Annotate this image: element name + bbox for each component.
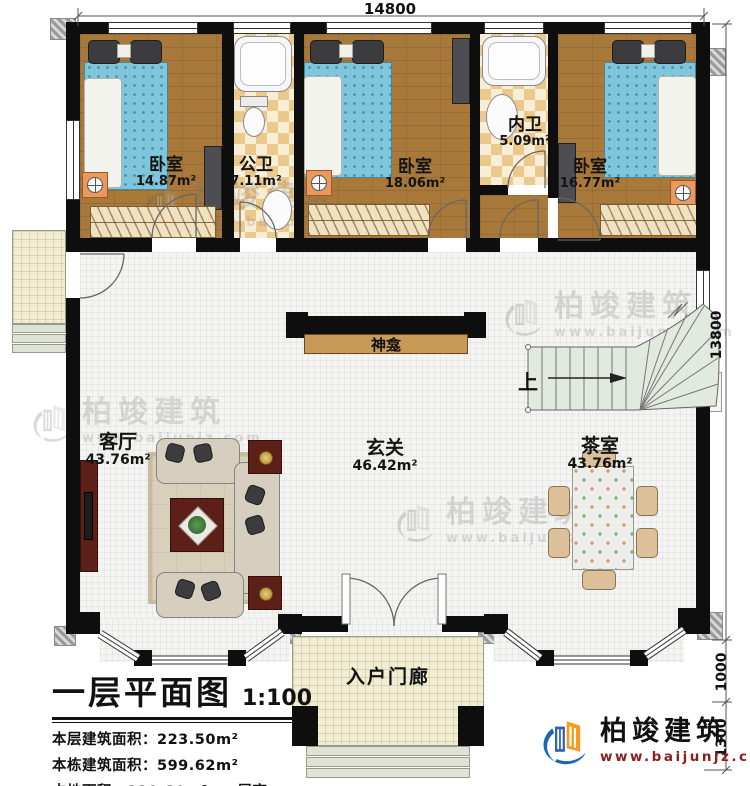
building-area-value: 599.62m² <box>157 758 238 774</box>
room-label-living: 客厅 43.76m² <box>62 432 174 469</box>
chair-symbol <box>548 528 570 558</box>
pillow-symbol <box>130 40 162 64</box>
wardrobe-symbol <box>90 206 216 238</box>
room-area: 43.76m² <box>62 453 174 469</box>
chair-symbol <box>636 486 658 516</box>
room-area: 14.87m² <box>116 175 216 190</box>
side-porch-step <box>12 334 66 343</box>
company-logo-icon <box>537 714 591 768</box>
window <box>604 22 692 34</box>
dresser-symbol <box>452 38 470 104</box>
room-name: 玄关 <box>329 438 441 459</box>
nightstand-symbol <box>670 180 696 206</box>
porch-step <box>306 757 470 767</box>
room-area: 7.11m² <box>213 175 299 190</box>
room-area: 18.06m² <box>365 177 465 192</box>
plan-scale: 1:100 <box>242 686 312 714</box>
shrine-wall <box>296 316 476 334</box>
interior-wall <box>294 34 304 238</box>
band-wall <box>466 238 500 252</box>
room-label-inner-bath: 内卫 5.09m² <box>475 116 575 150</box>
outer-wall-left <box>66 200 80 252</box>
corridor-floor <box>480 195 548 238</box>
duvet-symbol <box>658 76 696 176</box>
band-wall <box>196 238 240 252</box>
wardrobe-symbol <box>308 204 430 236</box>
sink-symbol <box>262 190 292 230</box>
dim-right-main: 13800 <box>709 300 725 370</box>
bedside-table-symbol <box>339 44 353 58</box>
company-logo: 柏竣建筑 www.baijunjz.com <box>537 714 750 768</box>
side-porch-step <box>12 324 66 333</box>
lamp-icon <box>675 185 691 201</box>
watermark-company: 柏竣建筑 <box>82 398 263 428</box>
tea-table-symbol <box>572 466 634 570</box>
room-label-bedroom3: 卧室 16.77m² <box>540 158 640 192</box>
duvet-symbol <box>304 76 342 176</box>
bathtub-inner <box>488 42 540 80</box>
lamp-icon <box>259 587 273 601</box>
bathtub-symbol <box>234 36 292 92</box>
band-wall <box>276 238 428 252</box>
side-porch-step <box>12 344 66 353</box>
window <box>233 22 291 34</box>
stairs-up-label: 上 <box>518 366 538 395</box>
pillow-symbol <box>352 40 384 64</box>
title-block: 一层平面图 1:100 本层建筑面积：223.50m² 本栋建筑面积：599.6… <box>52 666 322 786</box>
band-wall <box>538 238 698 252</box>
dim-right-porch: 1000 <box>714 647 730 697</box>
sofa-symbol <box>156 572 244 618</box>
outer-wall-right <box>696 370 710 612</box>
wall-niche <box>708 372 722 412</box>
bathtub-inner <box>240 42 286 86</box>
room-label-tea: 茶室 43.76m² <box>544 436 656 473</box>
toilet-tank-symbol <box>240 96 268 107</box>
building-area-label: 本栋建筑面积： <box>52 758 157 774</box>
room-area: 43.76m² <box>544 457 656 473</box>
shrine-altar: 神龛 <box>304 334 468 354</box>
window <box>326 22 432 34</box>
plan-title: 一层平面图 <box>52 666 232 714</box>
company-name: 柏竣建筑 <box>600 717 750 747</box>
room-area: 46.42m² <box>329 459 441 475</box>
lamp-icon <box>311 175 327 191</box>
toilet-symbol <box>243 107 265 137</box>
chair-symbol <box>548 486 570 516</box>
lamp-icon <box>259 451 273 465</box>
pillow-symbol <box>654 40 686 64</box>
floor-area-value: 223.50m² <box>157 732 238 748</box>
outer-wall-left <box>66 22 80 120</box>
bedside-table-symbol <box>641 44 655 58</box>
room-label-bedroom2: 卧室 18.06m² <box>365 158 465 192</box>
chair-symbol <box>636 528 658 558</box>
lamp-icon <box>87 177 103 193</box>
chair-symbol <box>582 570 616 590</box>
room-name: 卧室 <box>540 158 640 177</box>
building-area-line: 本栋建筑面积：599.62m² <box>52 754 322 775</box>
bathtub-symbol <box>482 36 546 86</box>
bottom-wall <box>442 616 484 632</box>
room-name: 卧室 <box>116 156 216 175</box>
nightstand-symbol <box>306 170 332 196</box>
room-name: 内卫 <box>475 116 575 135</box>
land-area-line: 占地面积：229.80m² 层高：3.9m <box>52 780 322 786</box>
band-wall <box>80 238 152 252</box>
floor-plan-canvas: 柏竣建筑 www.baijunjz.com 柏竣建筑 www.baijunjz.… <box>0 0 750 786</box>
room-name: 公卫 <box>213 156 299 175</box>
pillow-symbol <box>88 40 120 64</box>
plant-icon <box>188 516 206 534</box>
bay-left-floor <box>100 618 290 662</box>
porch-label: 入户门廊 <box>308 662 468 689</box>
porch-pillar <box>458 706 484 746</box>
pillow-symbol <box>612 40 644 64</box>
tv-symbol <box>84 492 93 540</box>
coffee-table-symbol <box>170 498 224 552</box>
room-area: 5.09m² <box>475 135 575 150</box>
room-label-public-bath: 公卫 7.11m² <box>213 156 299 190</box>
window <box>696 270 710 370</box>
room-area: 16.77m² <box>540 177 640 192</box>
side-porch-floor <box>12 230 66 324</box>
company-website: www.baijunjz.com <box>600 750 750 765</box>
floor-area-label: 本层建筑面积： <box>52 732 157 748</box>
room-label-bedroom1: 卧室 14.87m² <box>116 156 216 190</box>
bedside-table-symbol <box>117 44 131 58</box>
interior-wall <box>222 34 234 238</box>
pillow-symbol <box>310 40 342 64</box>
room-name: 茶室 <box>544 436 656 457</box>
bottom-wall <box>302 616 348 632</box>
entry-threshold-floor <box>346 618 442 638</box>
room-label-foyer: 玄关 46.42m² <box>329 438 441 475</box>
side-table-symbol <box>248 576 282 610</box>
bay-right-floor <box>494 618 684 662</box>
dim-top: 14800 <box>350 0 430 18</box>
shrine-label: 神龛 <box>305 335 467 355</box>
room-name: 客厅 <box>62 432 174 453</box>
inner-bath-wall <box>480 185 508 195</box>
corner-hatch <box>697 612 723 640</box>
nightstand-symbol <box>82 172 108 198</box>
title-rule <box>52 717 300 723</box>
window <box>484 22 544 34</box>
watermark-logo-icon <box>500 293 546 339</box>
watermark-logo-icon <box>392 499 438 545</box>
outer-wall-right <box>696 22 710 270</box>
floor-area-line: 本层建筑面积：223.50m² <box>52 728 322 749</box>
room-name: 卧室 <box>365 158 465 177</box>
porch-step <box>306 768 470 778</box>
side-table-symbol <box>248 440 282 474</box>
porch-step <box>306 746 470 756</box>
corner-hatch <box>54 626 76 646</box>
window <box>66 120 80 200</box>
wardrobe-symbol <box>600 204 698 236</box>
window <box>108 22 198 34</box>
